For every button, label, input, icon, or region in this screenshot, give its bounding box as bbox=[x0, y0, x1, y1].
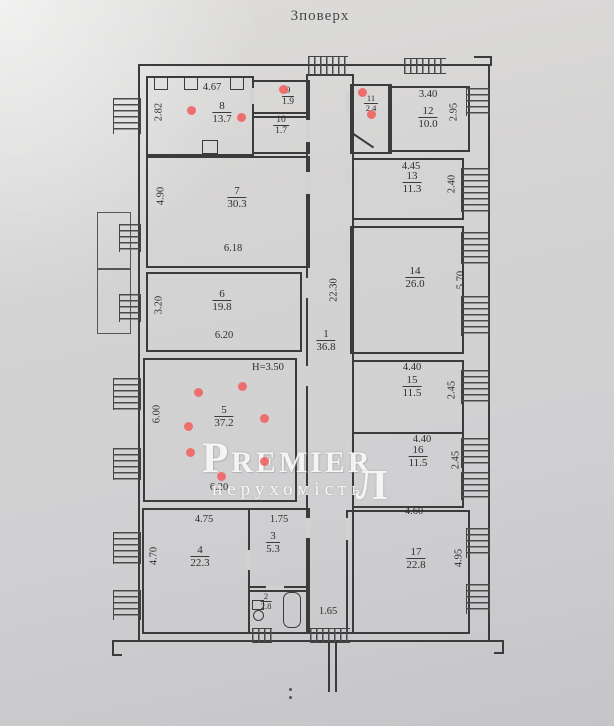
door-gap bbox=[306, 366, 310, 386]
dim-room8-top: 4.67 bbox=[203, 82, 221, 93]
room-10-area: 1.7 bbox=[273, 126, 289, 136]
red-dot bbox=[238, 382, 247, 391]
room-16-label: 16 11.5 bbox=[409, 444, 428, 469]
dim-room13-top: 4.45 bbox=[402, 161, 420, 172]
door-gap bbox=[306, 120, 310, 142]
room-12-area: 10.0 bbox=[418, 118, 437, 130]
room-4-outline bbox=[142, 508, 250, 634]
door-gap bbox=[346, 368, 350, 388]
red-dot bbox=[184, 422, 193, 431]
room-3-area: 5.3 bbox=[266, 543, 280, 555]
room-14-number: 14 bbox=[405, 265, 424, 278]
dim-ceiling-height: H=3.50 bbox=[252, 362, 284, 373]
room-8-area: 13.7 bbox=[212, 113, 231, 125]
red-dot bbox=[279, 85, 288, 94]
door-gap bbox=[346, 518, 350, 540]
window-hatch bbox=[119, 294, 141, 322]
extension-line bbox=[335, 642, 337, 692]
red-dot bbox=[237, 113, 246, 122]
room-6-number: 6 bbox=[212, 288, 231, 301]
room-13-area: 11.3 bbox=[403, 183, 422, 195]
window-hatch bbox=[461, 438, 489, 468]
room-17-outline bbox=[346, 510, 470, 634]
room-12-label: 12 10.0 bbox=[418, 105, 437, 130]
window-hatch bbox=[113, 378, 141, 410]
room-3-number: 3 bbox=[266, 530, 280, 543]
door-gap bbox=[266, 586, 284, 590]
room-17-label: 17 22.8 bbox=[406, 546, 425, 571]
dim-corridor-bottom: 1.65 bbox=[319, 606, 337, 617]
dim-room14-right: 5.70 bbox=[456, 271, 467, 289]
door-gap bbox=[306, 518, 310, 538]
room-8-number: 8 bbox=[212, 100, 231, 113]
corridor-number: 1 bbox=[316, 328, 335, 341]
room-12-number: 12 bbox=[418, 105, 437, 118]
room-15-area: 11.5 bbox=[403, 387, 422, 399]
corridor-area: 36.8 bbox=[316, 341, 335, 353]
room-3-label: 3 5.3 bbox=[266, 530, 280, 555]
dim-room12-top: 3.40 bbox=[419, 89, 437, 100]
red-dot bbox=[186, 448, 195, 457]
door-gap bbox=[346, 166, 350, 186]
room-17-number: 17 bbox=[406, 546, 425, 559]
bathtub-icon bbox=[283, 592, 301, 628]
page-mark-dot bbox=[289, 696, 292, 699]
room-4-area: 22.3 bbox=[190, 557, 209, 569]
window-hatch bbox=[113, 98, 141, 134]
room-15-label: 15 11.5 bbox=[403, 374, 422, 399]
dim-room8-left: 2.82 bbox=[154, 103, 165, 121]
dim-room3-top: 1.75 bbox=[270, 514, 288, 525]
room-6-area: 19.8 bbox=[212, 301, 231, 313]
dim-corridor-vertical: 22.30 bbox=[329, 278, 340, 302]
dim-room12-right: 2.95 bbox=[449, 103, 460, 121]
room-16-area: 11.5 bbox=[409, 457, 428, 469]
room-5-number: 5 bbox=[214, 404, 233, 417]
wall-pier bbox=[184, 76, 198, 90]
room-10-number: 10 bbox=[273, 115, 289, 126]
room-15-number: 15 bbox=[403, 374, 422, 387]
red-dot bbox=[217, 472, 226, 481]
window-hatch bbox=[113, 590, 141, 620]
entry-hatch bbox=[308, 56, 348, 76]
room-7-label: 7 30.3 bbox=[227, 185, 246, 210]
room-9-area: 1.9 bbox=[282, 97, 294, 107]
dim-room5-left: 6.00 bbox=[152, 405, 163, 423]
red-dot bbox=[358, 88, 367, 97]
window-hatch bbox=[466, 528, 490, 558]
extension-line bbox=[328, 642, 330, 692]
scanned-floor-plan: 3поверх bbox=[0, 0, 614, 726]
dim-room16-top: 4.40 bbox=[413, 434, 431, 445]
door-gap bbox=[306, 278, 310, 298]
dim-room4-left: 4.70 bbox=[149, 547, 160, 565]
window-hatch bbox=[461, 168, 489, 212]
window-hatch bbox=[461, 472, 489, 500]
dim-room15-right: 2.45 bbox=[447, 381, 458, 399]
room-7-number: 7 bbox=[227, 185, 246, 198]
page-mark-dot bbox=[289, 688, 292, 691]
room-10-label: 10 1.7 bbox=[273, 115, 289, 137]
dim-room17-right: 4.95 bbox=[454, 549, 465, 567]
dim-room13-right: 2.40 bbox=[447, 175, 458, 193]
dim-room16-right: 2.45 bbox=[451, 451, 462, 469]
dim-room5-bottom: 6.20 bbox=[210, 482, 228, 493]
dim-room4-top: 4.75 bbox=[195, 514, 213, 525]
window-hatch bbox=[113, 532, 141, 564]
dim-room6-bottom: 6.20 bbox=[215, 330, 233, 341]
door-gap bbox=[250, 88, 254, 104]
wall-pier bbox=[202, 140, 218, 154]
room-4-label: 4 22.3 bbox=[190, 544, 209, 569]
red-dot bbox=[187, 106, 196, 115]
red-dot bbox=[367, 110, 376, 119]
window-hatch bbox=[466, 584, 490, 614]
red-dot bbox=[260, 457, 269, 466]
dim-room7-left: 4.90 bbox=[156, 187, 167, 205]
room-14-area: 26.0 bbox=[405, 278, 424, 290]
shaft-hatch bbox=[404, 58, 446, 74]
corridor-outline bbox=[306, 74, 354, 634]
dim-room15-top: 4.40 bbox=[403, 362, 421, 373]
wall-topright-step-v bbox=[490, 56, 492, 66]
window-hatch bbox=[113, 448, 141, 480]
bottom-hatch bbox=[310, 628, 350, 643]
room-7-area: 30.3 bbox=[227, 198, 246, 210]
room-4-number: 4 bbox=[190, 544, 209, 557]
room-17-area: 22.8 bbox=[406, 559, 425, 571]
floor-title: 3поверх bbox=[291, 8, 350, 25]
window-hatch bbox=[461, 296, 489, 336]
door-gap bbox=[306, 172, 310, 194]
dim-room17-top: 4.60 bbox=[405, 506, 423, 517]
room-8-label: 8 13.7 bbox=[212, 100, 231, 125]
room-14-label: 14 26.0 bbox=[405, 265, 424, 290]
room-16-number: 16 bbox=[409, 444, 428, 457]
wall-pier bbox=[230, 76, 244, 90]
room-6-label: 6 19.8 bbox=[212, 288, 231, 313]
room-5-label: 5 37.2 bbox=[214, 404, 233, 429]
room-2-area: 2.8 bbox=[261, 602, 272, 611]
red-dot bbox=[260, 414, 269, 423]
window-hatch bbox=[119, 224, 141, 252]
bottom-hatch bbox=[252, 628, 272, 643]
wall-bottom-right-hook bbox=[494, 652, 504, 654]
corridor-label: 1 36.8 bbox=[316, 328, 335, 353]
wall-bottom-outer bbox=[112, 640, 504, 642]
room-2-label: 2 2.8 bbox=[261, 592, 272, 612]
door-gap bbox=[246, 550, 250, 570]
window-hatch bbox=[461, 370, 489, 404]
window-hatch bbox=[461, 232, 489, 264]
wall-bottom-left-hook bbox=[112, 654, 122, 656]
dim-room7-bottom: 6.18 bbox=[224, 243, 242, 254]
door-gap bbox=[346, 438, 350, 458]
door-gap bbox=[346, 242, 350, 264]
window-hatch bbox=[466, 88, 490, 116]
door-gap bbox=[346, 94, 350, 114]
room-13-label: 13 11.3 bbox=[403, 170, 422, 195]
red-dot bbox=[194, 388, 203, 397]
dim-room6-left: 3.20 bbox=[154, 296, 165, 314]
room-5-area: 37.2 bbox=[214, 417, 233, 429]
wall-pier bbox=[154, 76, 168, 90]
